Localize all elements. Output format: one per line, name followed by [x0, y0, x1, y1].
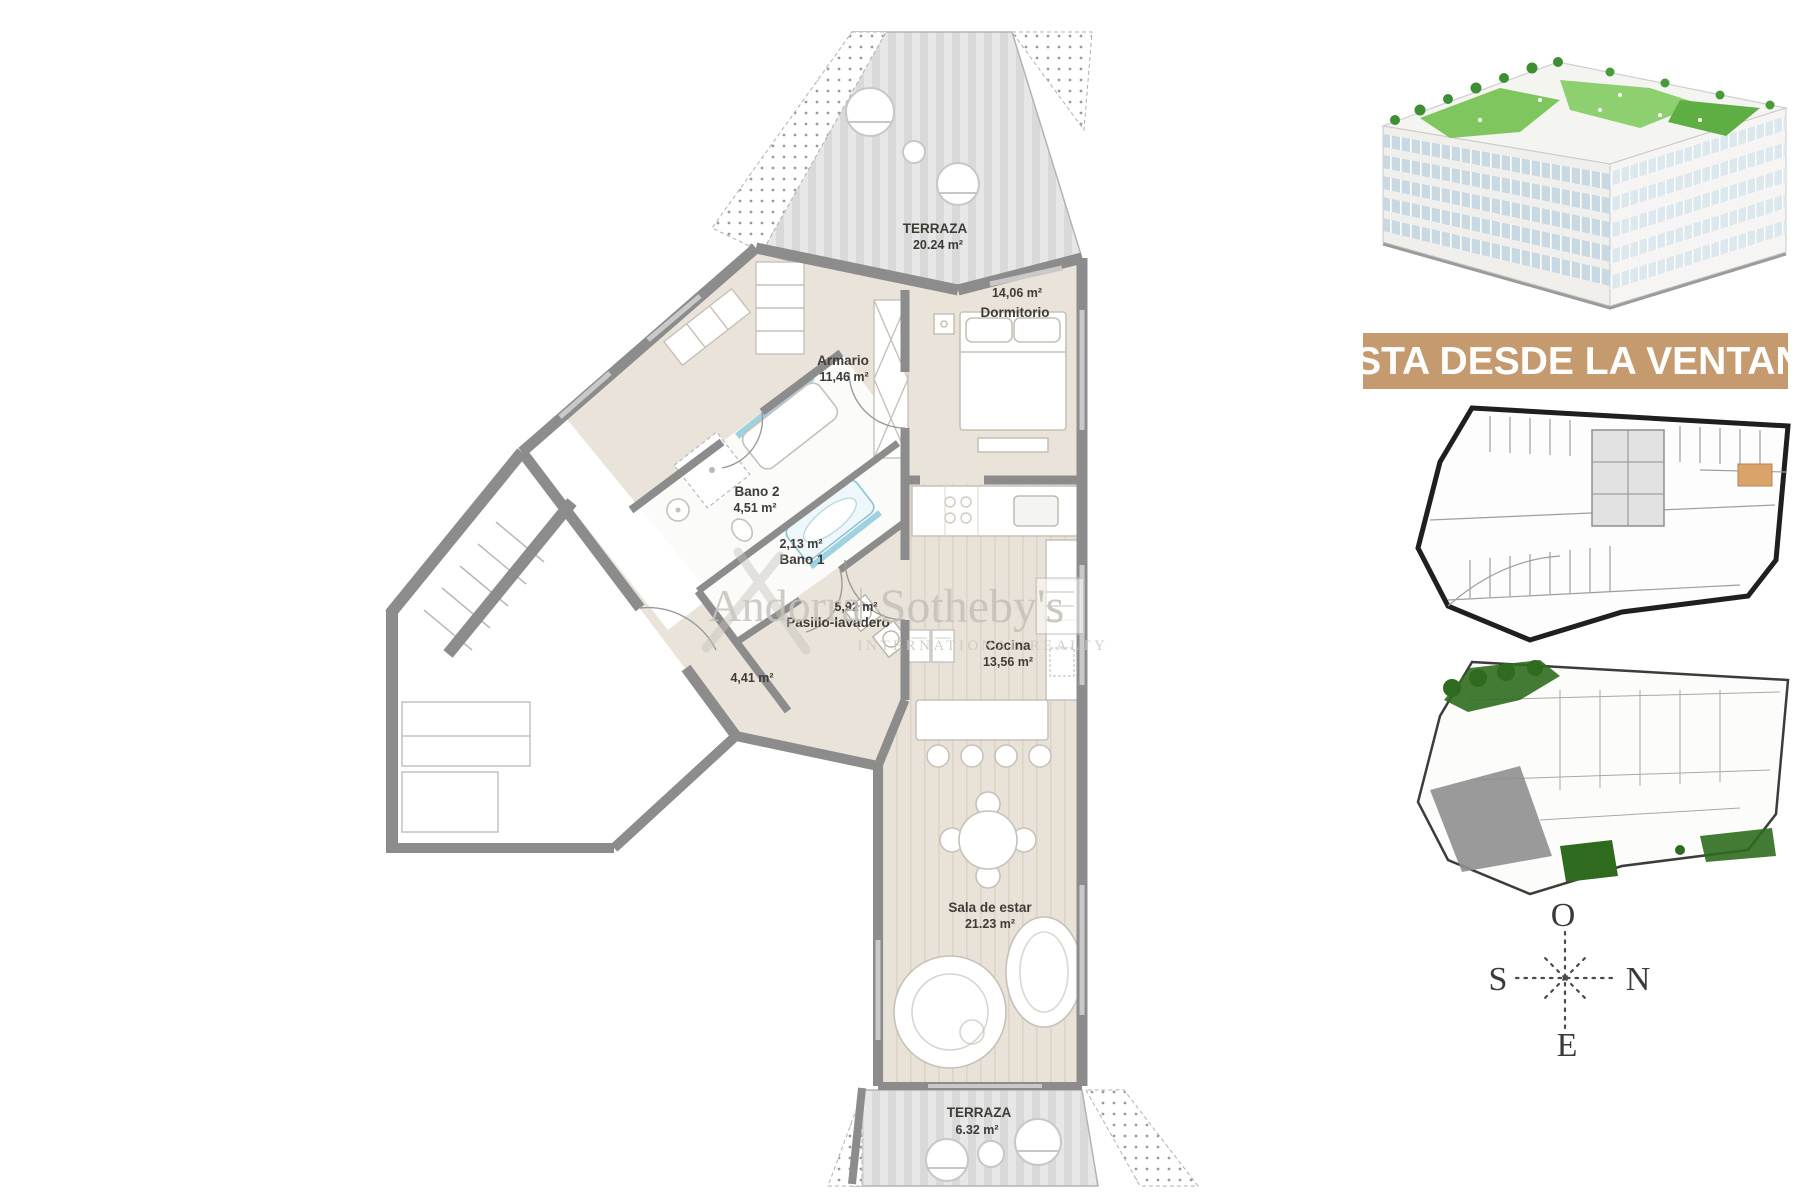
compass-south-label: S	[1489, 961, 1508, 998]
compass-west-label: O	[1551, 897, 1576, 934]
terrace-bottom	[828, 1090, 1198, 1186]
apartment-floorplan: TERRAZA 20.24 m² 14,06 m² Dormitorio Arm…	[386, 32, 1198, 1186]
building-render-illustration	[1383, 57, 1786, 308]
label-bano1: Bano 1	[779, 552, 825, 567]
compass: O N S E	[1489, 897, 1651, 1064]
site-floorplan-thumbnail	[1418, 660, 1788, 894]
watermark-divider: |	[857, 580, 865, 625]
area-armario: 11,46 m²	[819, 370, 868, 384]
label-terraza-bottom: TERRAZA	[947, 1105, 1012, 1120]
label-sala: Sala de estar	[948, 900, 1032, 915]
area-terraza-top: 20.24 m²	[913, 238, 963, 252]
garage-floorplan-thumbnail	[1418, 408, 1788, 640]
label-dormitorio: Dormitorio	[981, 305, 1050, 320]
compass-north-label: N	[1626, 961, 1651, 998]
label-bano2: Bano 2	[734, 484, 779, 499]
area-dormitorio: 14,06 m²	[992, 286, 1042, 300]
view-banner-label: VISTA DESDE LA VENTANA	[1318, 340, 1800, 383]
watermark-subtitle: INTERNATIONAL REALTY	[858, 638, 1109, 654]
compass-east-label: E	[1557, 1027, 1578, 1064]
watermark-brand2: Sotheby's	[880, 580, 1065, 633]
side-panel: VISTA DESDE LA VENTANA	[1318, 57, 1800, 1064]
area-bano1: 2,13 m²	[779, 537, 822, 551]
highlighted-unit	[1738, 464, 1772, 486]
area-hall: 4,41 m²	[730, 671, 773, 685]
watermark-brand: Andorra	[708, 580, 861, 631]
page-canvas: TERRAZA 20.24 m² 14,06 m² Dormitorio Arm…	[0, 0, 1800, 1200]
view-banner: VISTA DESDE LA VENTANA	[1318, 333, 1800, 389]
label-terraza-top: TERRAZA	[903, 221, 968, 236]
area-bano2: 4,51 m²	[733, 501, 776, 515]
area-sala: 21.23 m²	[965, 917, 1015, 931]
label-armario: Armario	[817, 353, 869, 368]
area-cocina: 13,56 m²	[983, 655, 1033, 669]
area-terraza-bottom: 6.32 m²	[955, 1123, 998, 1137]
